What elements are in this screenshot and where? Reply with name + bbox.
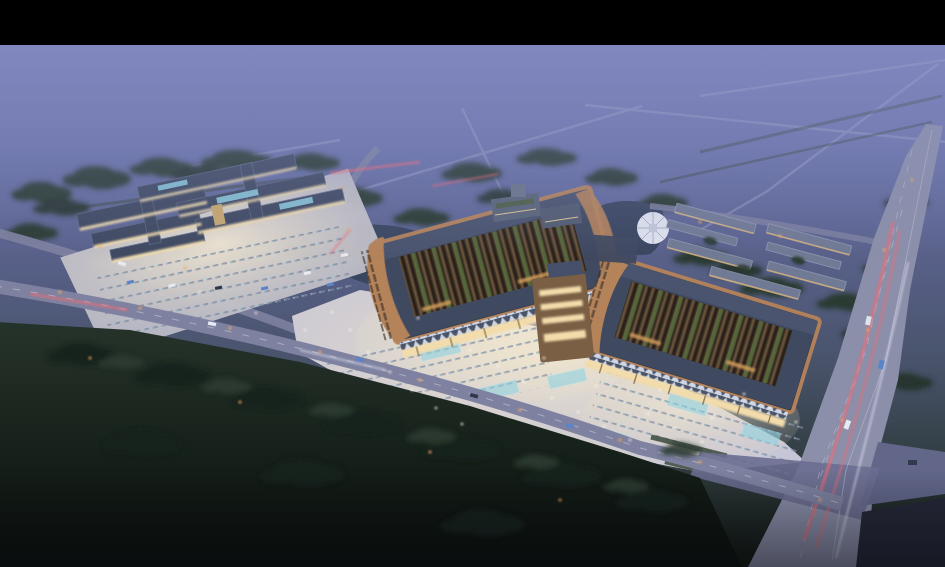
rendering-canvas	[0, 0, 945, 567]
bottom-vignette	[0, 470, 945, 567]
fog-overlay	[0, 45, 945, 260]
letterbox-top	[0, 0, 945, 45]
scene-content	[0, 45, 945, 567]
aerial-scene	[0, 0, 945, 567]
